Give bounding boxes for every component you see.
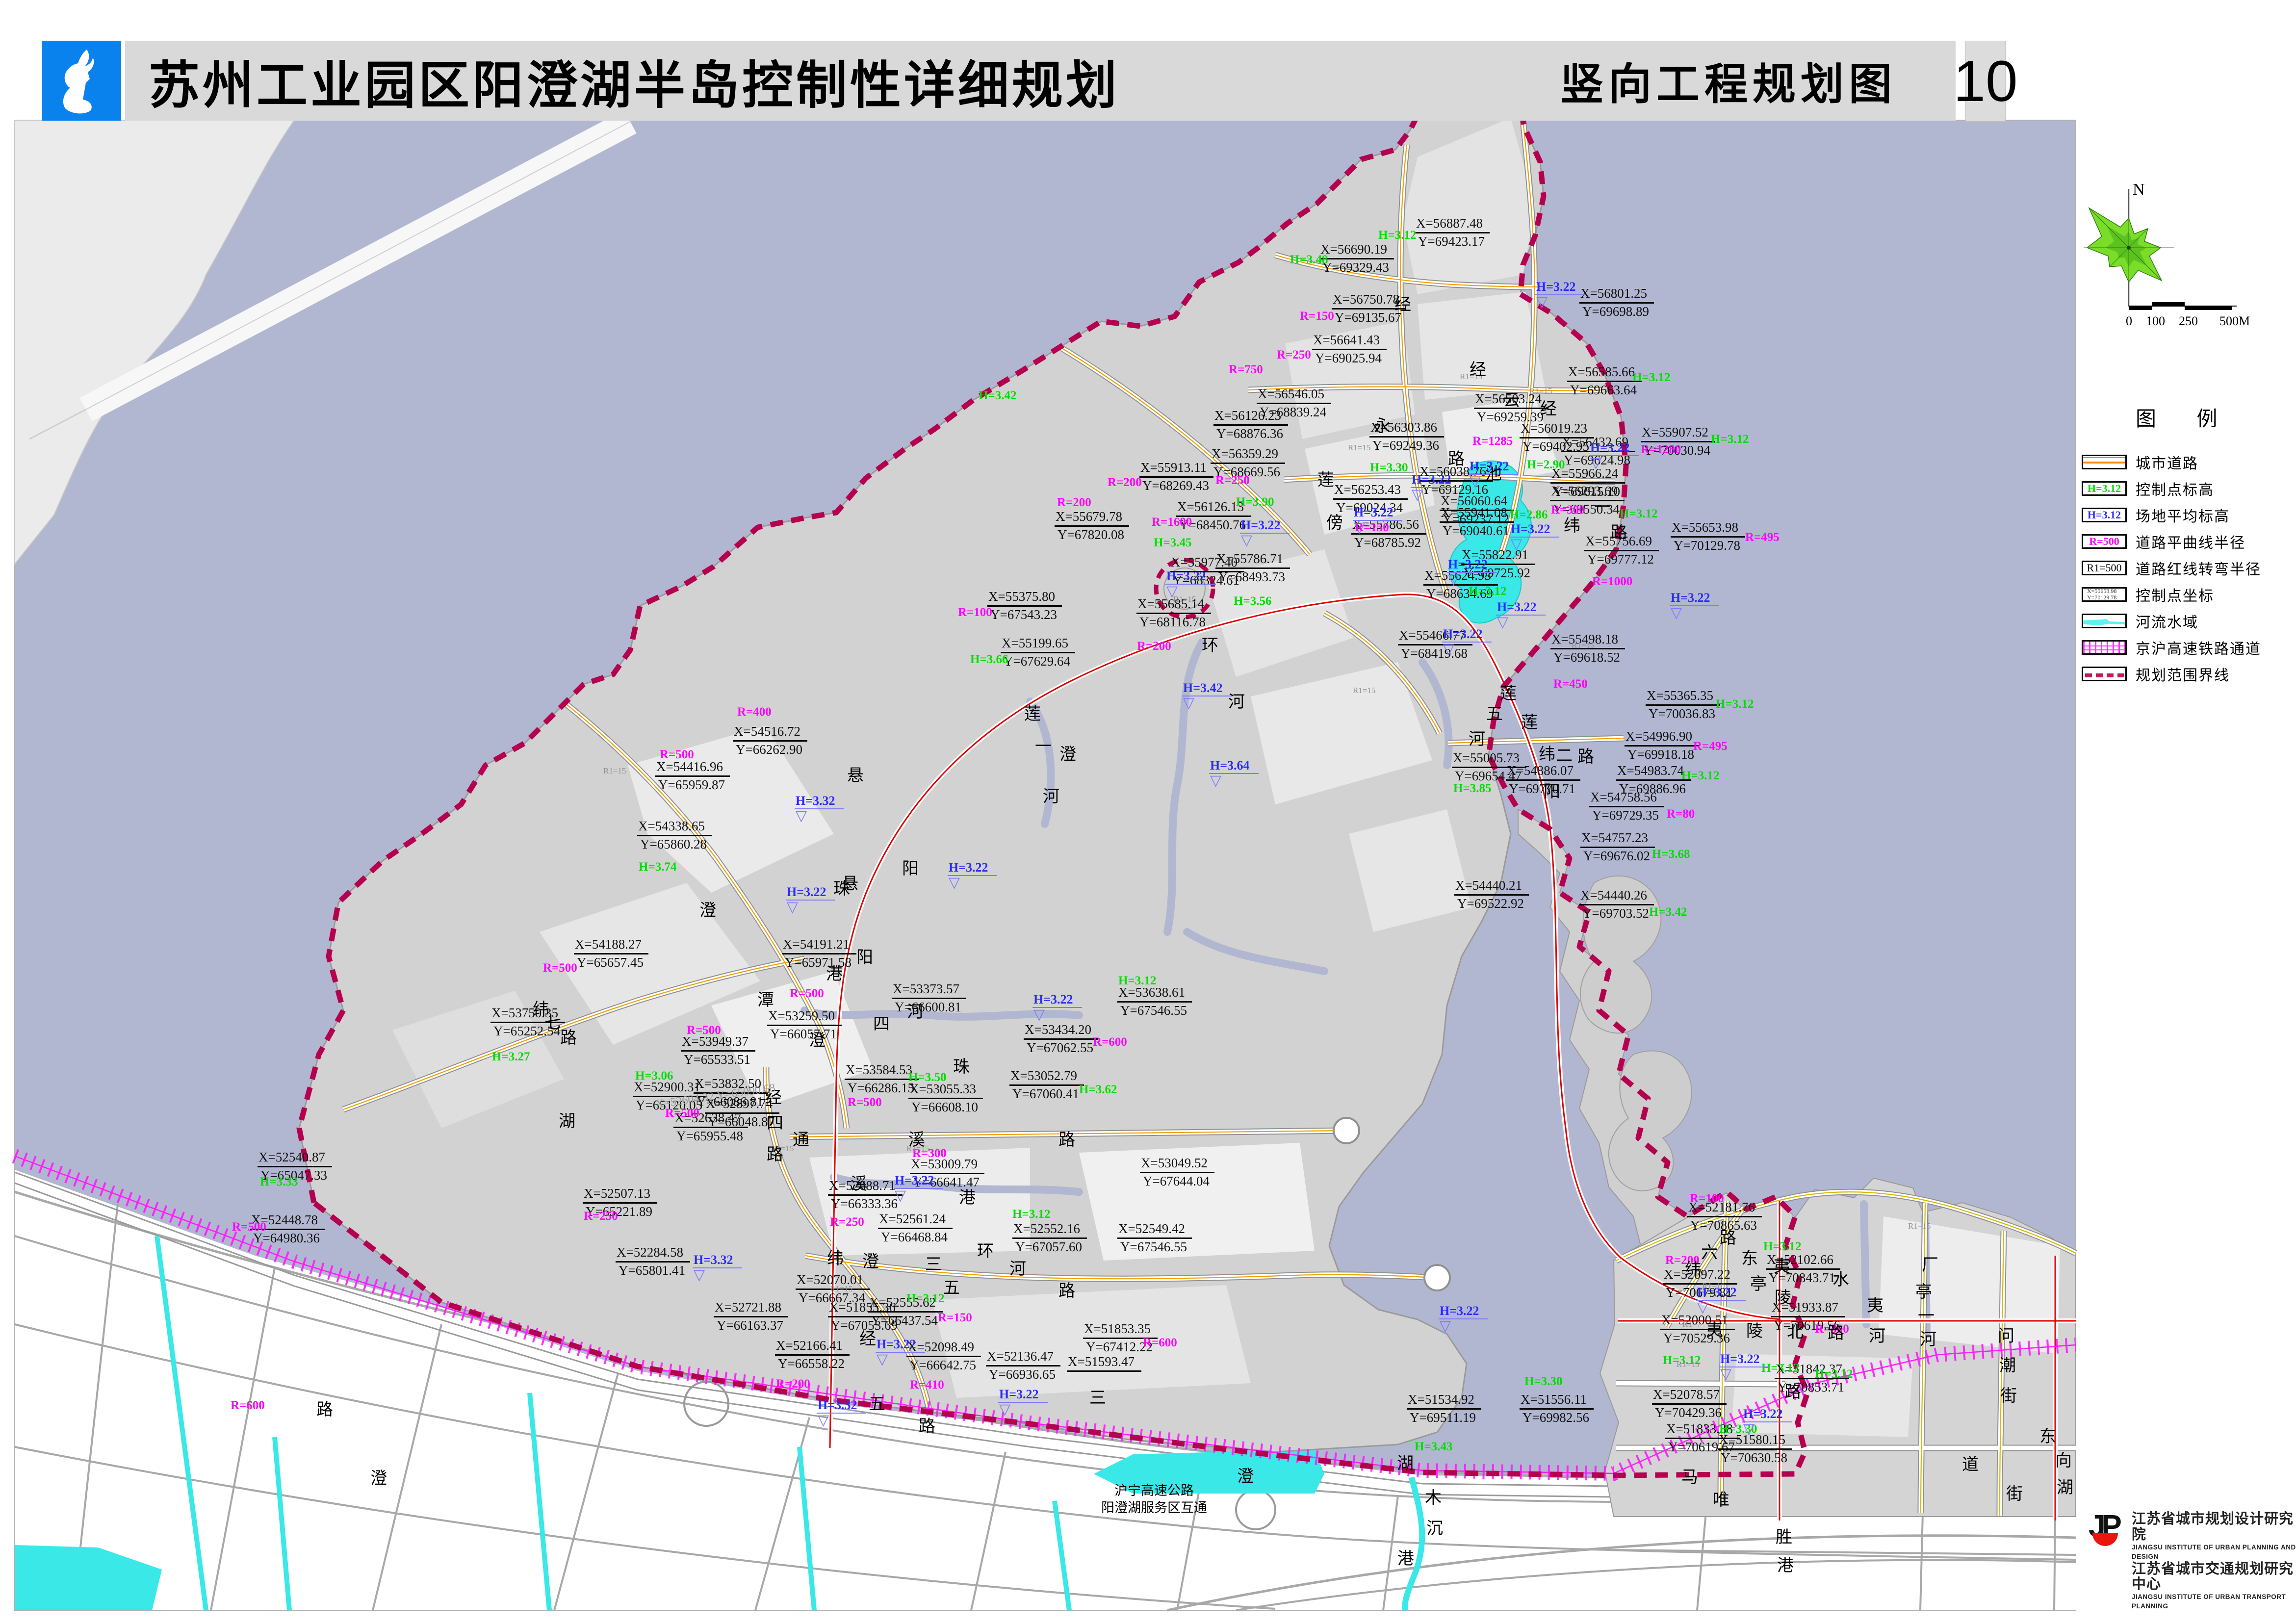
legend-label: 规划范围界线 (2136, 663, 2230, 685)
legend-symbol-elev-green: H=3.12 (2082, 481, 2127, 496)
legend-item: X=55653.98Y=70129.78控制点坐标 (2082, 581, 2288, 608)
small-island (1164, 568, 1205, 609)
legend: 图 例 城市道路H=3.12控制点标高H=3.12场地平均标高R=500道路平曲… (2082, 402, 2288, 687)
legend-label: 控制点坐标 (2136, 584, 2214, 605)
legend-item: 规划范围界线 (2082, 661, 2288, 687)
legend-symbol-coord: X=55653.98Y=70129.78 (2082, 587, 2127, 602)
scale-tick: 250 (2179, 314, 2198, 329)
legend-item: 城市道路 (2082, 449, 2288, 475)
attribution-en: JIANGSU INSTITUTE OF URBAN TRANSPORT PLA… (2132, 1593, 2296, 1611)
legend-label: 河流水域 (2136, 610, 2198, 632)
roundabout (1424, 1265, 1450, 1290)
attribution-zh: 江苏省城市交通规划研究中心 (2132, 1562, 2296, 1593)
legend-symbol-r1: R1=500 (2082, 561, 2127, 575)
roundabout (1334, 1118, 1359, 1143)
legend-label: 城市道路 (2136, 451, 2198, 473)
legend-item: H=3.12场地平均标高 (2082, 502, 2288, 528)
outside-area-southeast (1614, 1517, 2076, 1610)
legend-symbol-radius: R=500 (2082, 534, 2127, 549)
title-bar: 苏州工业园区阳澄湖半岛控制性详细规划 竖向工程规划图 (125, 41, 1956, 121)
sheet-number: 10 (1965, 41, 2006, 122)
legend-symbol-road (2082, 455, 2127, 469)
agency-logo (42, 41, 121, 121)
scale-tick: 500M (2219, 314, 2250, 329)
jp-logo-icon: JP (2089, 1512, 2127, 1551)
north-label: N (2133, 180, 2145, 199)
attribution-en: JIANGSU INSTITUTE OF URBAN PLANNING AND … (2132, 1543, 2296, 1562)
legend-label: 道路平曲线半径 (2136, 531, 2245, 552)
attribution-text: 江苏省城市规划设计研究院JIANGSU INSTITUTE OF URBAN P… (2132, 1512, 2296, 1611)
planning-map-sheet: 苏州工业园区阳澄湖半岛控制性详细规划 竖向工程规划图 10 N 01002505… (0, 0, 2296, 1624)
legend-symbol-boundary (2082, 667, 2127, 681)
legend-label: 道路红线转弯半径 (2136, 557, 2261, 579)
legend-symbol-elev-blue: H=3.12 (2082, 508, 2127, 522)
legend-item: 河流水域 (2082, 608, 2288, 634)
scale-tick: 0 (2126, 314, 2132, 329)
attribution-zh: 江苏省城市规划设计研究院 (2132, 1512, 2296, 1543)
legend-item: 京沪高速铁路通道 (2082, 634, 2288, 661)
attribution-block: JP 江苏省城市规划设计研究院JIANGSU INSTITUTE OF URBA… (2089, 1512, 2296, 1611)
legend-item: R1=500道路红线转弯半径 (2082, 555, 2288, 581)
page-title: 苏州工业园区阳澄湖半岛控制性详细规划 (149, 44, 1120, 118)
map-canvas (0, 0, 2296, 1624)
sheet-title: 竖向工程规划图 (1560, 50, 1897, 112)
legend-item: H=3.12控制点标高 (2082, 475, 2288, 502)
legend-label: 场地平均标高 (2136, 504, 2230, 526)
scale-tick: 100 (2146, 314, 2165, 329)
scale-bar (2129, 302, 2237, 310)
wind-rose (2084, 189, 2174, 307)
legend-label: 控制点标高 (2136, 478, 2214, 499)
legend-symbol-railway (2082, 640, 2127, 655)
legend-label: 京沪高速铁路通道 (2136, 637, 2261, 658)
legend-symbol-river (2082, 614, 2127, 628)
legend-item: R=500道路平曲线半径 (2082, 528, 2288, 555)
legend-title: 图 例 (2136, 402, 2288, 432)
